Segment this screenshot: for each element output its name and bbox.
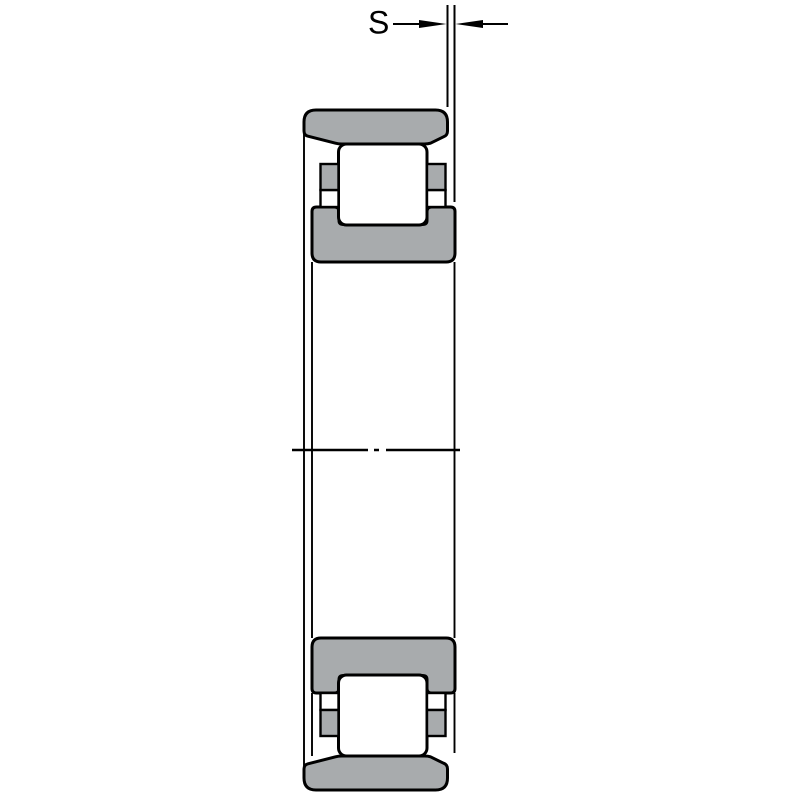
cylindrical-roller-bearing-diagram: S — [0, 0, 800, 800]
cage-gap-top-left — [321, 190, 339, 207]
cage-gap-bottom-right — [427, 693, 446, 710]
dimension-label-s: S — [368, 5, 389, 41]
dimension-arrow-right-pointing-icon — [419, 20, 447, 28]
cage-bar-bottom-right — [427, 710, 446, 736]
dimension-arrow-left-pointing-icon — [456, 20, 484, 28]
cage-gap-bottom-left — [321, 693, 339, 710]
outer-ring-top-section — [304, 110, 448, 144]
cage-gap-top-right — [427, 190, 446, 207]
cage-bar-top-left — [321, 164, 339, 190]
outer-ring-bottom-section — [304, 756, 448, 790]
roller-bottom — [339, 675, 428, 756]
cage-bar-bottom-left — [321, 710, 339, 736]
bearing-drawing-canvas: S — [0, 0, 800, 800]
cage-bar-top-right — [427, 164, 446, 190]
roller-top — [339, 144, 428, 225]
